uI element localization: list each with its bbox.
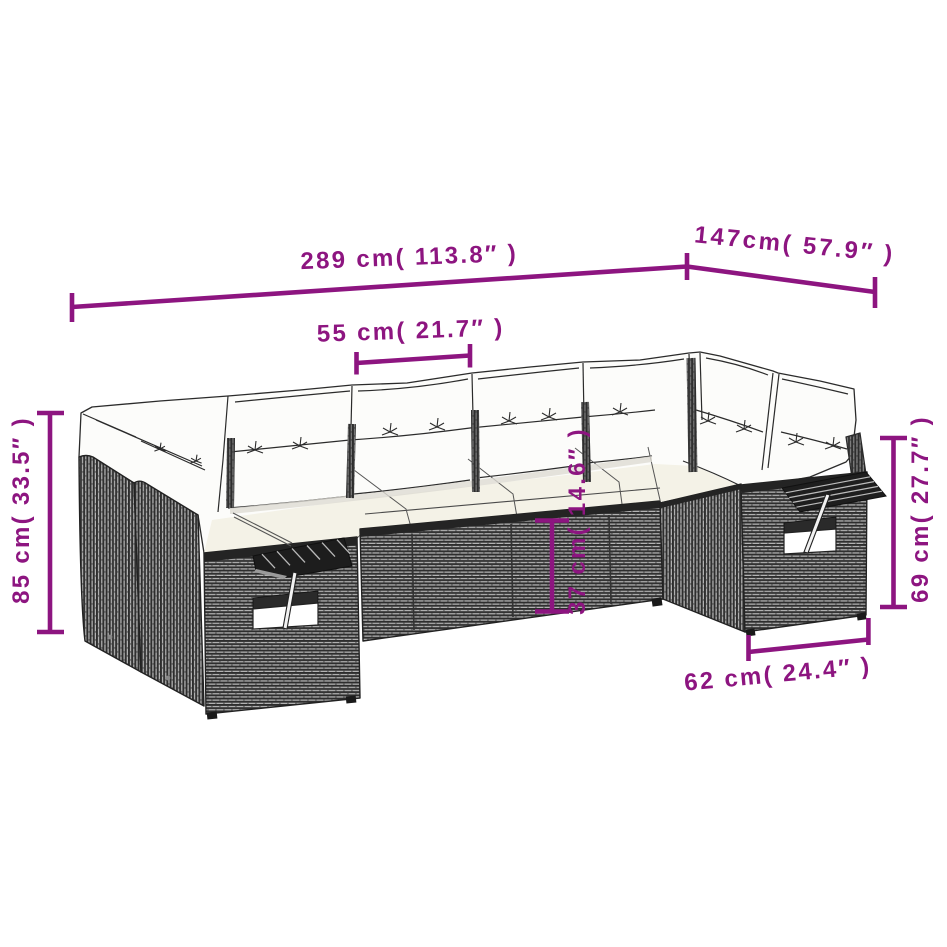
svg-text:85 cm( 33.5″ ): 85 cm( 33.5″ ) xyxy=(8,416,35,604)
svg-text:289 cm( 113.8″ ): 289 cm( 113.8″ ) xyxy=(300,240,519,275)
svg-text:69 cm( 27.7″ ): 69 cm( 27.7″ ) xyxy=(907,415,934,603)
svg-text:37 cm( 14.6″ ): 37 cm( 14.6″ ) xyxy=(564,427,591,615)
svg-text:147cm( 57.9″ ): 147cm( 57.9″ ) xyxy=(693,221,896,268)
svg-text:55 cm( 21.7″ ): 55 cm( 21.7″ ) xyxy=(316,314,505,348)
svg-text:62 cm( 24.4″ ): 62 cm( 24.4″ ) xyxy=(683,652,872,696)
